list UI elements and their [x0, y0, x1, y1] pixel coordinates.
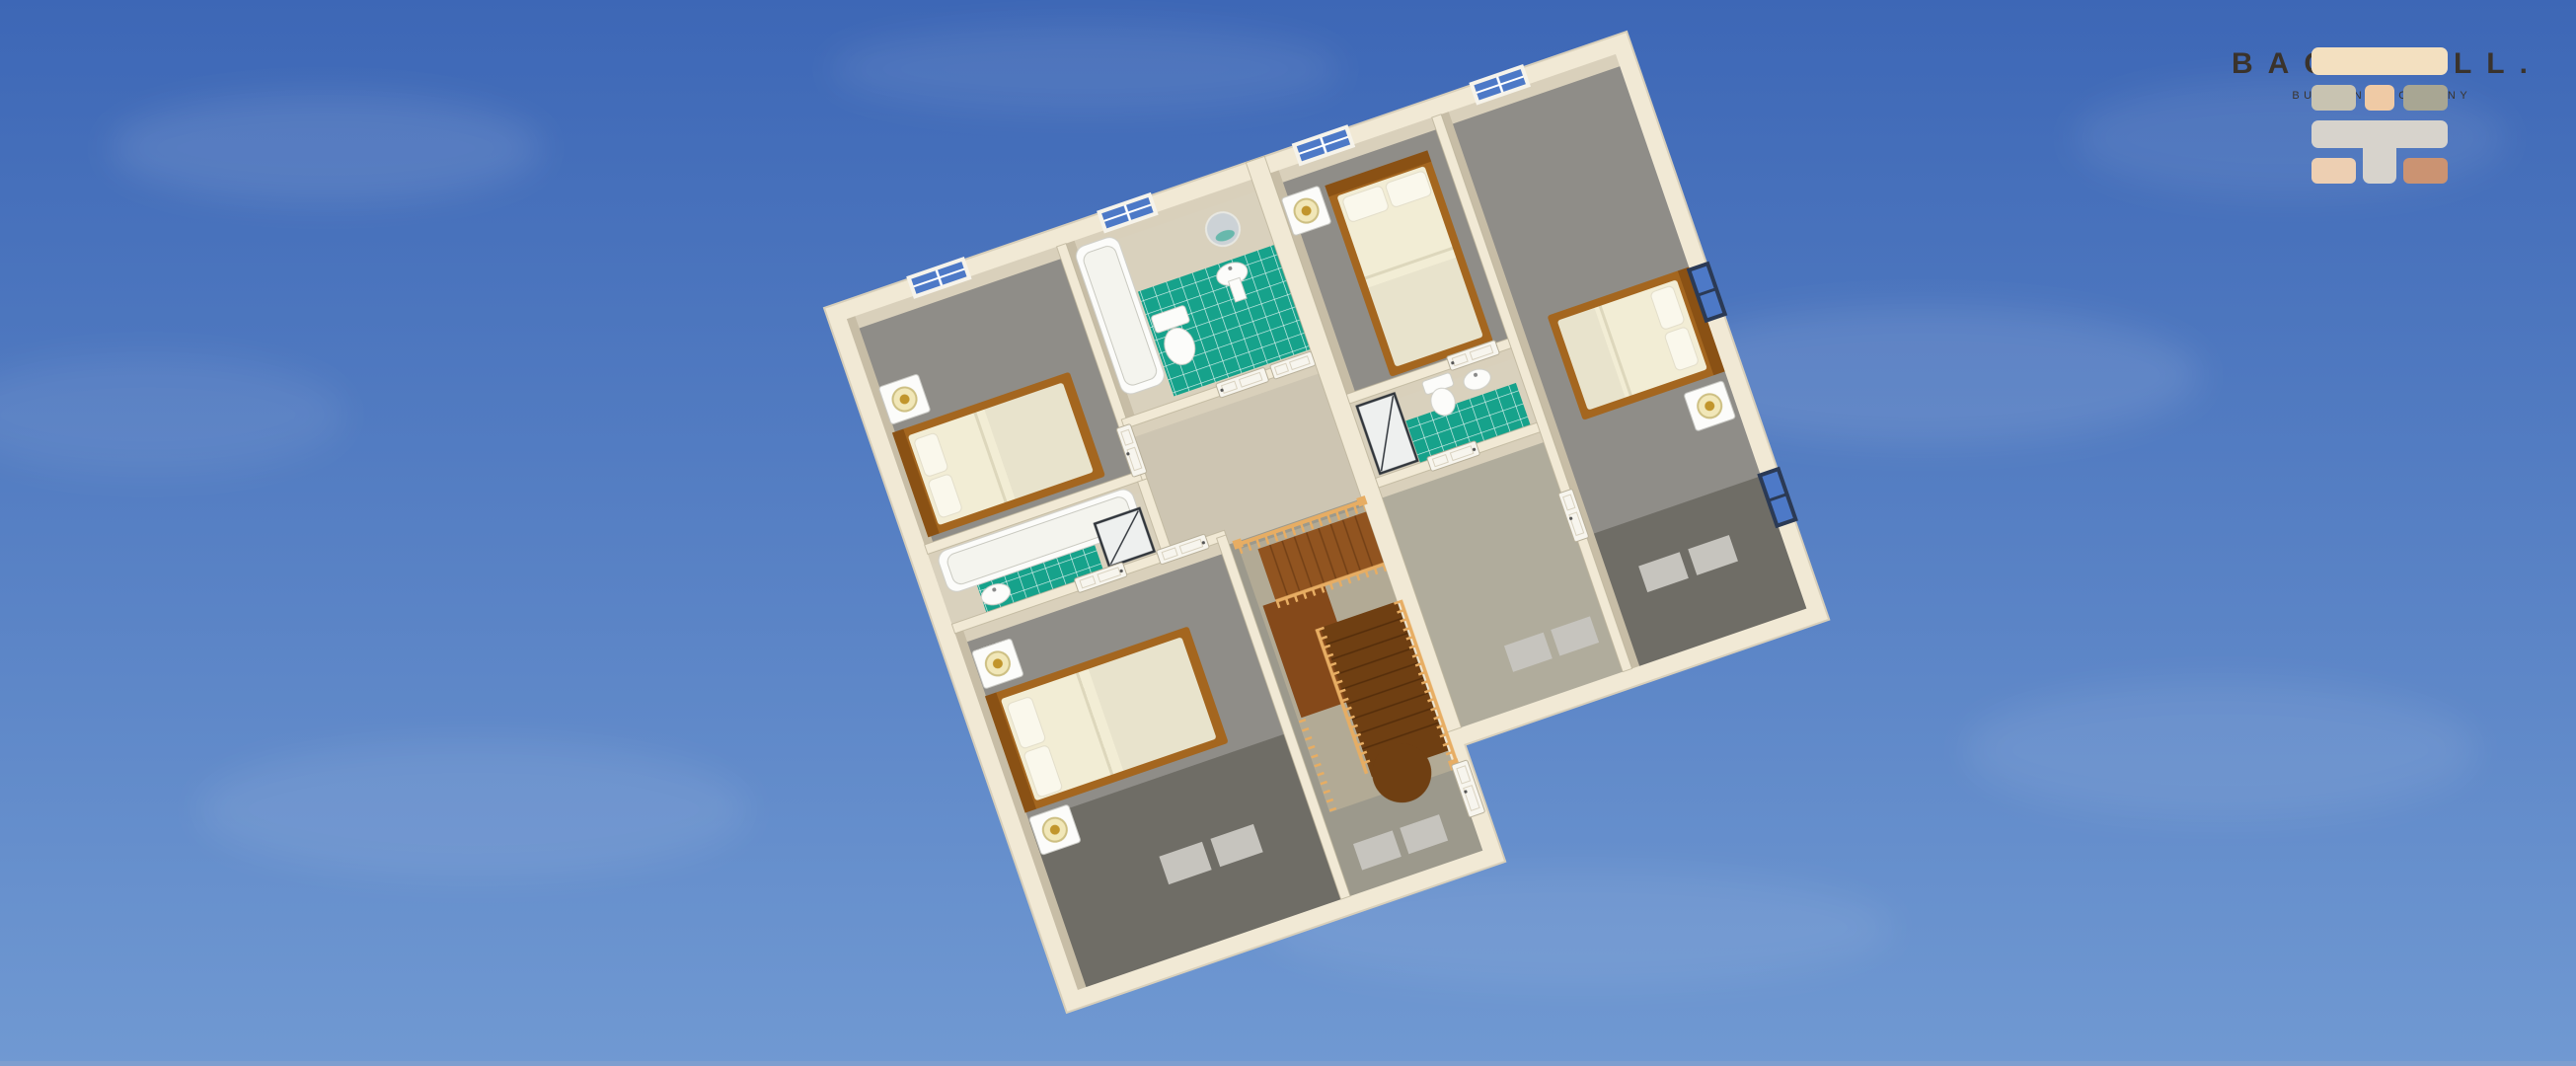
logo-brick-row4-left	[2311, 158, 2356, 184]
logo-brick-row4-right	[2403, 158, 2448, 184]
rendered-scene: BACKWALL. BUILDING COMPANY	[0, 0, 2576, 1066]
logo-brick-row2-right	[2403, 85, 2448, 111]
logo-brick-row2-mid	[2365, 85, 2394, 111]
logo-brick-row2-left	[2311, 85, 2356, 111]
sky-and-floorplan	[0, 0, 2576, 1066]
backwall-logo-brick-icon	[2311, 47, 2448, 186]
logo-brick-row3	[2311, 120, 2448, 148]
logo-brick-row1	[2311, 47, 2448, 75]
backwall-logo: BACKWALL. BUILDING COMPANY	[2216, 47, 2543, 102]
image-bottom-edge	[0, 1061, 2576, 1066]
